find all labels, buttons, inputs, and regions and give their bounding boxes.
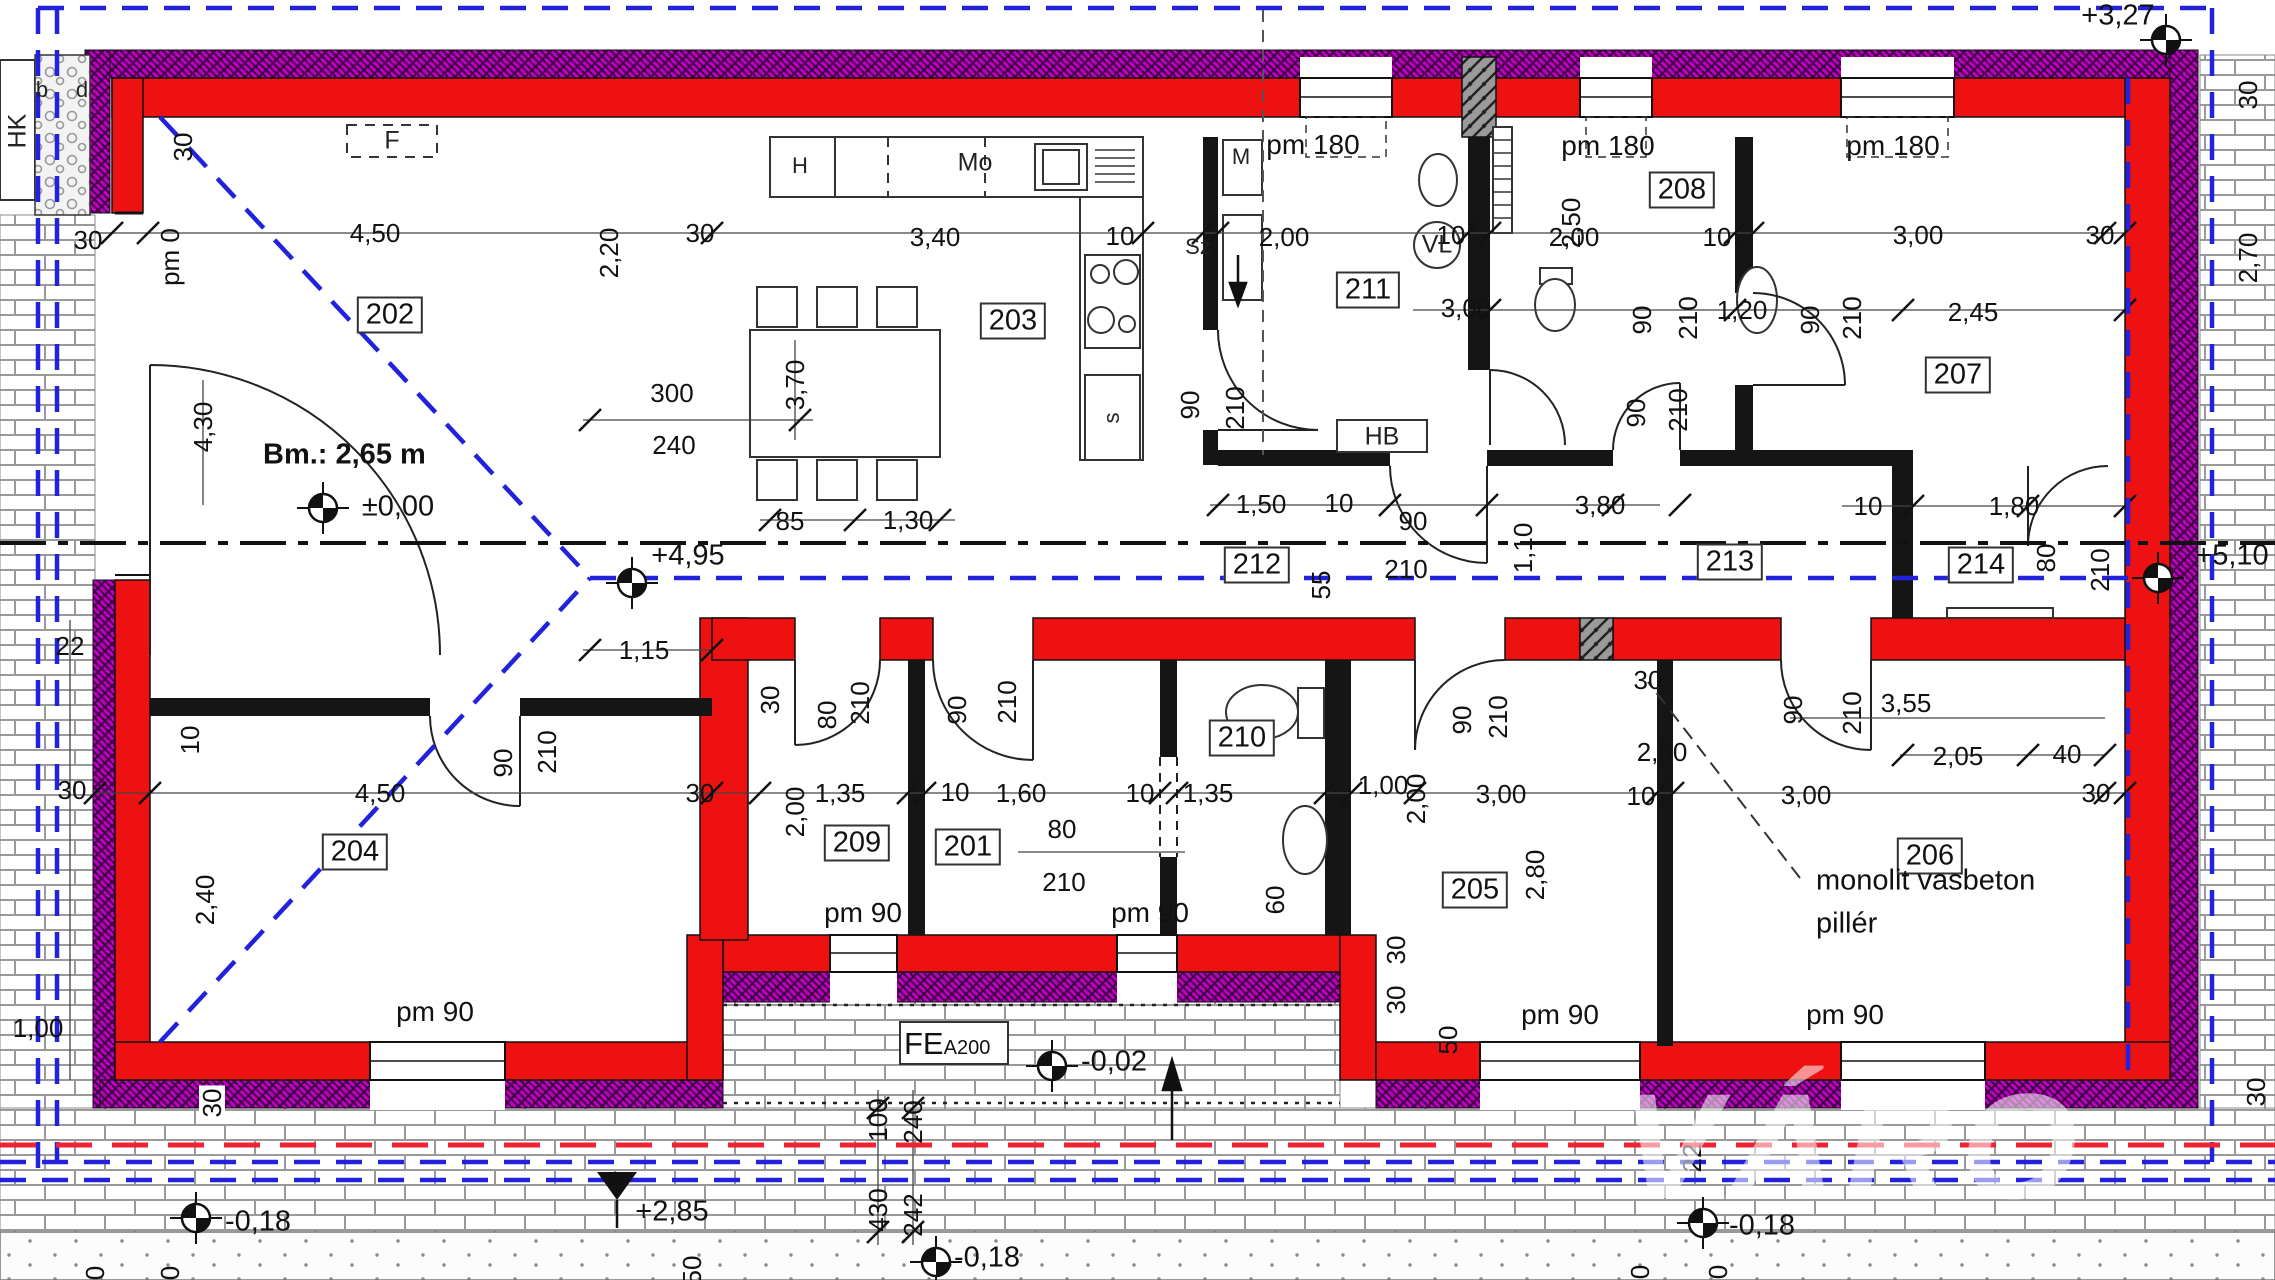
radiator	[1493, 127, 1512, 233]
basin-210	[1283, 806, 1327, 874]
concrete-band	[0, 1232, 2275, 1280]
pillar-note-line1: monolit vasbeton	[1816, 865, 2035, 898]
floorplan-canvas: 3030pm 04,50303,40102,00102,00103,00302,…	[0, 0, 2275, 1280]
floor-structure-label: FEA200	[904, 1026, 990, 1062]
fe-sub: A200	[944, 1037, 991, 1059]
fe-main: FE	[904, 1026, 944, 1061]
toilet-208	[1535, 279, 1575, 331]
washing-machine	[1223, 140, 1262, 195]
chimney-box	[0, 60, 35, 200]
toilet-210	[1226, 685, 1298, 739]
dining-table	[750, 330, 940, 457]
chimney-flue	[35, 55, 90, 215]
shelf-214	[1947, 608, 2053, 618]
wc-211	[1419, 154, 1457, 206]
watermark: VÁRO	[1620, 1060, 2085, 1233]
basin-207	[1737, 267, 1777, 333]
pillar-note-line2: pillér	[1816, 908, 1877, 941]
ceiling-height-note: Bm.: 2,65 m	[263, 439, 426, 472]
hb-box	[1337, 420, 1427, 452]
